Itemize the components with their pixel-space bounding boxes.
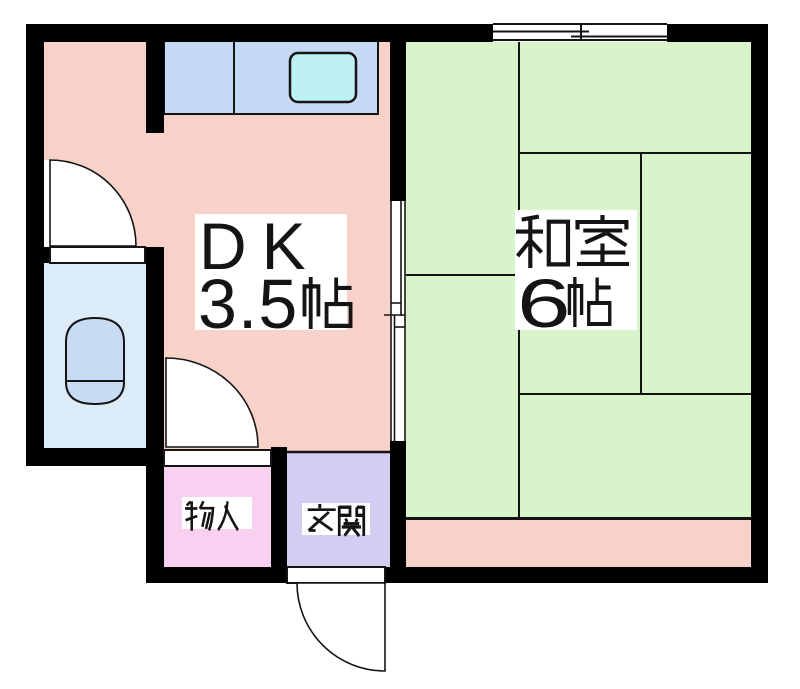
svg-text:3.5: 3.5: [198, 265, 298, 343]
svg-text:6: 6: [517, 265, 571, 342]
